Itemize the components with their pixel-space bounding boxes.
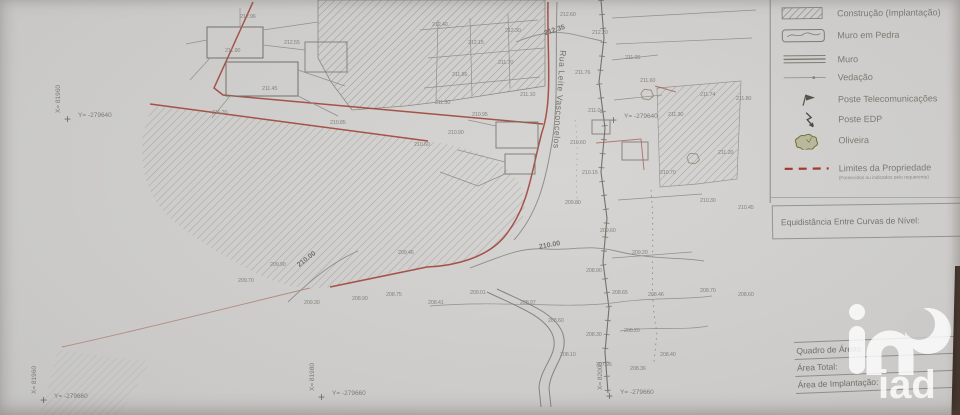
iad-logo-i-dot xyxy=(849,304,865,320)
iad-logo-crescent-inner xyxy=(903,308,935,340)
iad-watermark-logo: iad xyxy=(0,0,960,415)
iad-wordmark: iad xyxy=(878,363,936,407)
iad-logo-i-bar xyxy=(849,326,865,374)
